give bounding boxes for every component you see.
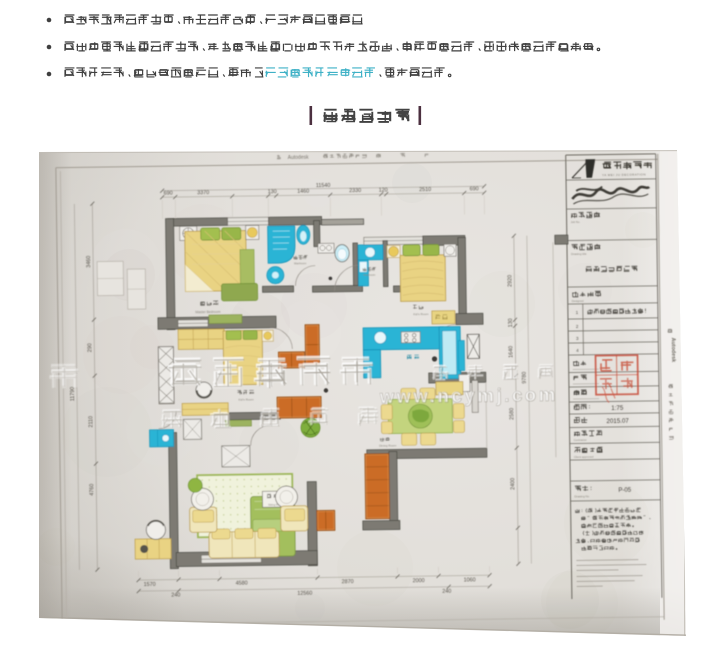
svg-text:2580: 2580 xyxy=(509,408,515,420)
svg-text:2330: 2330 xyxy=(349,188,361,194)
svg-text:290: 290 xyxy=(87,343,93,352)
svg-text:Drawing title: Drawing title xyxy=(571,252,587,256)
svg-text:Designed: Designed xyxy=(572,299,584,303)
svg-text:Job No.: Job No. xyxy=(571,220,581,224)
svg-text:Master Bedroom: Master Bedroom xyxy=(195,310,220,314)
svg-text:3370: 3370 xyxy=(197,190,209,196)
svg-text:130: 130 xyxy=(268,189,277,195)
svg-text:3460: 3460 xyxy=(86,256,92,268)
svg-text:Washroom: Washroom xyxy=(363,274,375,277)
svg-text:Dining Room: Dining Room xyxy=(379,443,397,447)
svg-text:Client approved: Client approved xyxy=(574,455,594,459)
svg-text:2510: 2510 xyxy=(419,187,431,193)
svg-text:11790: 11790 xyxy=(70,387,76,402)
svg-text:690: 690 xyxy=(164,191,173,197)
svg-text:130: 130 xyxy=(508,318,514,327)
svg-text:2015.07: 2015.07 xyxy=(606,418,629,425)
svg-text:Contractor: Contractor xyxy=(574,438,587,442)
svg-text:690: 690 xyxy=(470,186,479,192)
svg-text:1570: 1570 xyxy=(144,582,156,588)
svg-text:1:75: 1:75 xyxy=(611,405,624,412)
svg-text:Kid's Room: Kid's Room xyxy=(238,397,254,401)
svg-text:2920: 2920 xyxy=(507,275,513,287)
svg-text:12560: 12560 xyxy=(297,591,312,597)
svg-text:240: 240 xyxy=(171,593,180,599)
svg-text:4580: 4580 xyxy=(236,581,248,587)
svg-text:1060: 1060 xyxy=(464,577,476,583)
svg-text:11540: 11540 xyxy=(316,183,331,189)
svg-text:Drawing No.: Drawing No. xyxy=(574,494,590,498)
svg-text:4760: 4760 xyxy=(89,484,95,496)
svg-text:9780: 9780 xyxy=(522,372,528,384)
svg-text:P-05: P-05 xyxy=(618,488,631,494)
svg-text:120: 120 xyxy=(379,188,388,194)
svg-text:Autodesk: Autodesk xyxy=(288,155,309,161)
svg-text:www.ncymj.com: www.ncymj.com xyxy=(379,384,558,407)
svg-text:240: 240 xyxy=(442,589,451,595)
svg-text:2870: 2870 xyxy=(342,579,354,585)
svg-text:YA MEI JU DECORATION: YA MEI JU DECORATION xyxy=(602,172,646,177)
svg-text:Washroom: Washroom xyxy=(294,261,307,265)
svg-text:1460: 1460 xyxy=(297,189,309,195)
svg-text:Kid's Room: Kid's Room xyxy=(413,312,429,316)
svg-text:Autodesk: Autodesk xyxy=(670,338,676,363)
svg-text:2000: 2000 xyxy=(413,578,425,584)
svg-text:2110: 2110 xyxy=(88,416,94,428)
svg-text:1640: 1640 xyxy=(508,346,514,358)
svg-text:2400: 2400 xyxy=(510,478,516,490)
